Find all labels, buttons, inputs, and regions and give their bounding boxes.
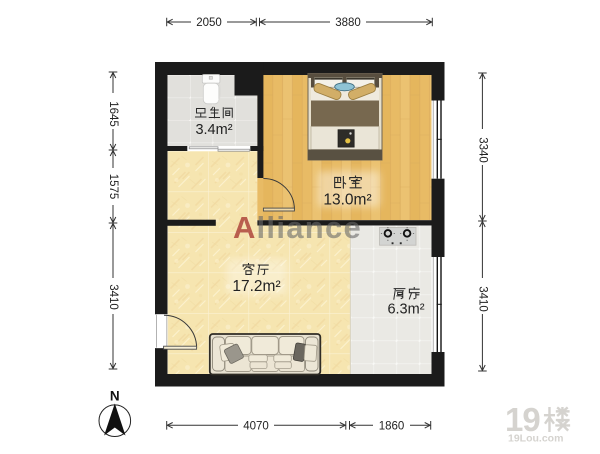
svg-text:A: A <box>233 210 255 245</box>
svg-text:17.2m²: 17.2m² <box>232 278 280 295</box>
svg-text:3880: 3880 <box>335 17 361 29</box>
svg-text:13.0m²: 13.0m² <box>323 191 371 208</box>
svg-text:6.3m²: 6.3m² <box>387 302 424 318</box>
svg-text:lliance: lliance <box>257 210 363 245</box>
svg-text:3410: 3410 <box>476 286 488 312</box>
svg-text:2050: 2050 <box>196 17 222 29</box>
svg-text:3410: 3410 <box>107 284 119 310</box>
svg-text:1645: 1645 <box>107 101 119 127</box>
svg-text:3340: 3340 <box>476 137 488 163</box>
svg-text:1575: 1575 <box>107 174 119 200</box>
svg-text:19Lou.com: 19Lou.com <box>508 433 563 445</box>
svg-text:3.4m²: 3.4m² <box>195 122 232 138</box>
svg-text:N: N <box>110 389 120 404</box>
svg-text:1860: 1860 <box>379 420 405 432</box>
svg-text:4070: 4070 <box>243 420 269 432</box>
